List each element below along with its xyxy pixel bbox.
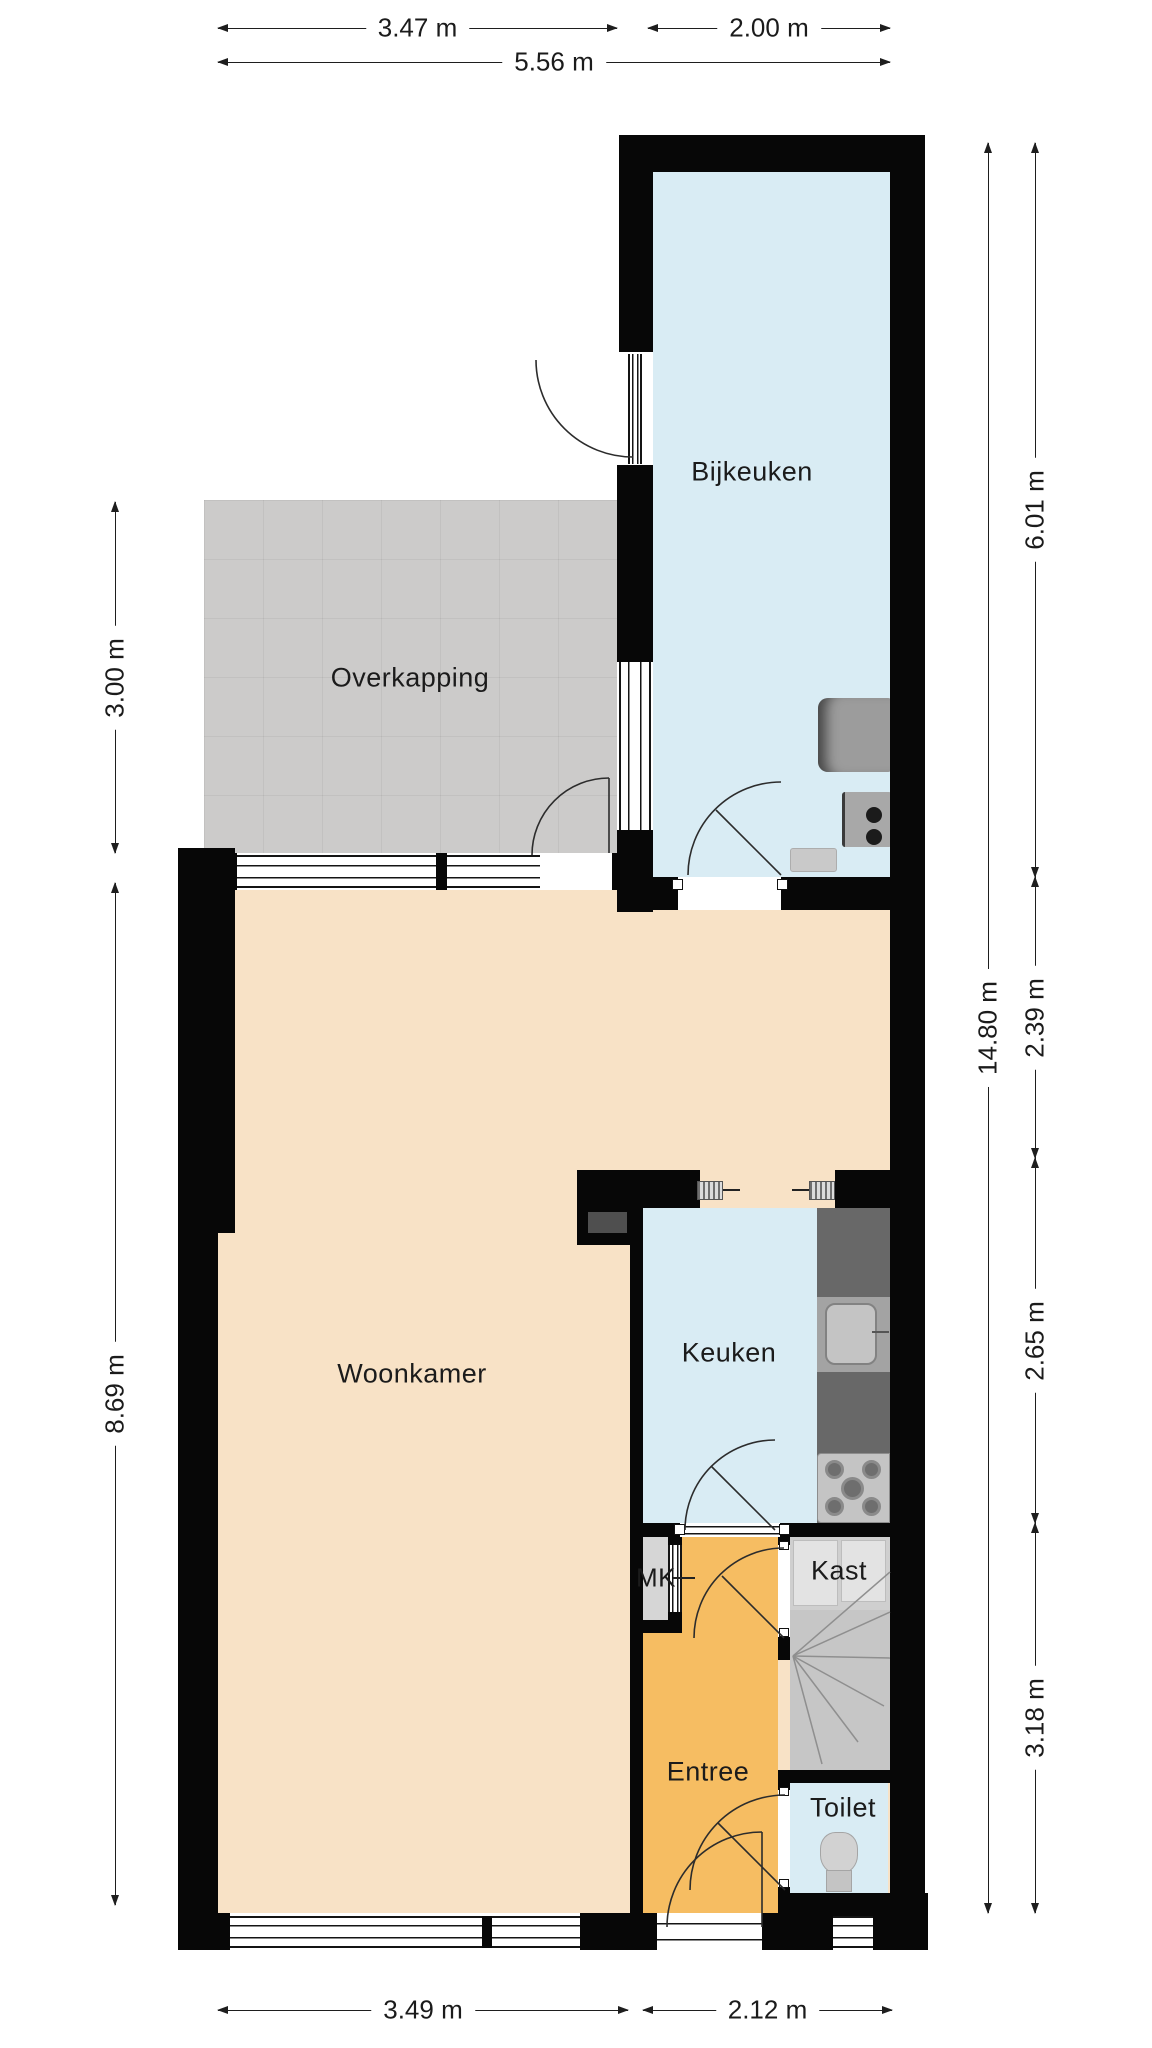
burner-icon (862, 1460, 881, 1479)
dim-right-bijkeuken: 6.01 m (1035, 143, 1036, 877)
faucet-icon (872, 1331, 889, 1333)
burner-icon (825, 1460, 844, 1479)
dim-top-overkapping: 3.47 m (218, 28, 617, 29)
door-threshold (778, 1545, 790, 1637)
burner-icon (825, 1497, 844, 1516)
wall (178, 848, 235, 1233)
room-woonkamer-label: Woonkamer (337, 1359, 487, 1390)
duct-icon (588, 1212, 627, 1233)
door-jamb (779, 1879, 789, 1888)
room-bijkeuken-label: Bijkeuken (691, 457, 813, 488)
window (833, 1916, 873, 1948)
wall (577, 1170, 700, 1208)
wall (668, 1537, 682, 1545)
door-threshold (540, 855, 612, 888)
wall (668, 1612, 682, 1620)
wall (178, 1913, 230, 1950)
wall (612, 853, 653, 890)
wall (873, 1893, 928, 1950)
mk-label-leader (673, 1577, 695, 1579)
dim-right-dining: 2.39 m (1035, 877, 1036, 1158)
wall (790, 1893, 833, 1950)
room-entree-label: Entree (667, 1757, 750, 1788)
dim-top-bijkeuken: 2.00 m (648, 28, 890, 29)
window (619, 662, 651, 830)
floor-plan: Bijkeuken Overkapping Woonkamer Keuken E… (0, 0, 1152, 2048)
dim-left-woonkamer: 8.69 m (115, 883, 116, 1905)
dim-top-total: 5.56 m (218, 62, 890, 63)
window-mullion (436, 853, 447, 890)
dim-left-overkapping: 3.00 m (115, 502, 116, 853)
opening-jamb-line (723, 1189, 740, 1191)
window (237, 855, 540, 888)
door-jamb (674, 1524, 685, 1535)
room-toilet-label: Toilet (810, 1793, 876, 1824)
wall (619, 135, 925, 172)
door-threshold (678, 877, 781, 910)
wall (780, 1523, 890, 1537)
boiler-icon (818, 698, 892, 772)
doormat-icon (790, 848, 837, 872)
wall (617, 465, 653, 662)
dim-bottom-entree: 2.12 m (643, 2010, 892, 2011)
door-jamb (672, 879, 683, 890)
door-jamb (779, 1524, 790, 1535)
door-threshold (680, 1523, 780, 1537)
toilet-icon (820, 1832, 858, 1874)
wall (778, 1770, 890, 1783)
door-jamb (777, 879, 788, 890)
wall (630, 1620, 682, 1633)
wall (619, 172, 653, 352)
wall (778, 1637, 790, 1660)
wall (890, 172, 925, 1950)
door-threshold (778, 1790, 790, 1887)
door-jamb (779, 1541, 789, 1550)
washer-knob-icon (866, 807, 882, 823)
room-kast-label: Kast (811, 1556, 867, 1587)
door-jamb (779, 1787, 789, 1796)
room-keuken-label: Keuken (682, 1338, 777, 1369)
wall (762, 1913, 790, 1950)
wall (630, 1208, 643, 1913)
stairs-floor (790, 1610, 890, 1770)
wall (833, 1893, 873, 1916)
window (230, 1916, 580, 1948)
dim-right-entree: 3.18 m (1035, 1523, 1036, 1913)
wall (178, 1233, 218, 1950)
burner-icon (862, 1497, 881, 1516)
wall (778, 1887, 790, 1913)
wall (178, 853, 237, 890)
window-mullion (482, 1916, 492, 1948)
dim-right-total: 14.80 m (988, 143, 989, 1913)
washer-knob-icon (866, 829, 882, 845)
door-leaf (628, 354, 642, 464)
door-threshold (657, 1913, 762, 1950)
room-mk-label: MK (636, 1563, 676, 1594)
wall (580, 1913, 657, 1950)
room-overkapping-label: Overkapping (331, 663, 490, 694)
opening-jamb-line (792, 1189, 809, 1191)
dim-bottom-woonkamer: 3.49 m (218, 2010, 628, 2011)
opening-jamb-icon (697, 1181, 723, 1200)
burner-icon (841, 1477, 864, 1500)
opening-jamb-icon (809, 1181, 835, 1200)
toilet-base-icon (826, 1870, 852, 1892)
wall (835, 1170, 890, 1208)
sink-icon (825, 1303, 877, 1365)
dim-right-keuken: 2.65 m (1035, 1158, 1036, 1523)
wall (781, 877, 925, 910)
door-jamb (779, 1628, 789, 1637)
